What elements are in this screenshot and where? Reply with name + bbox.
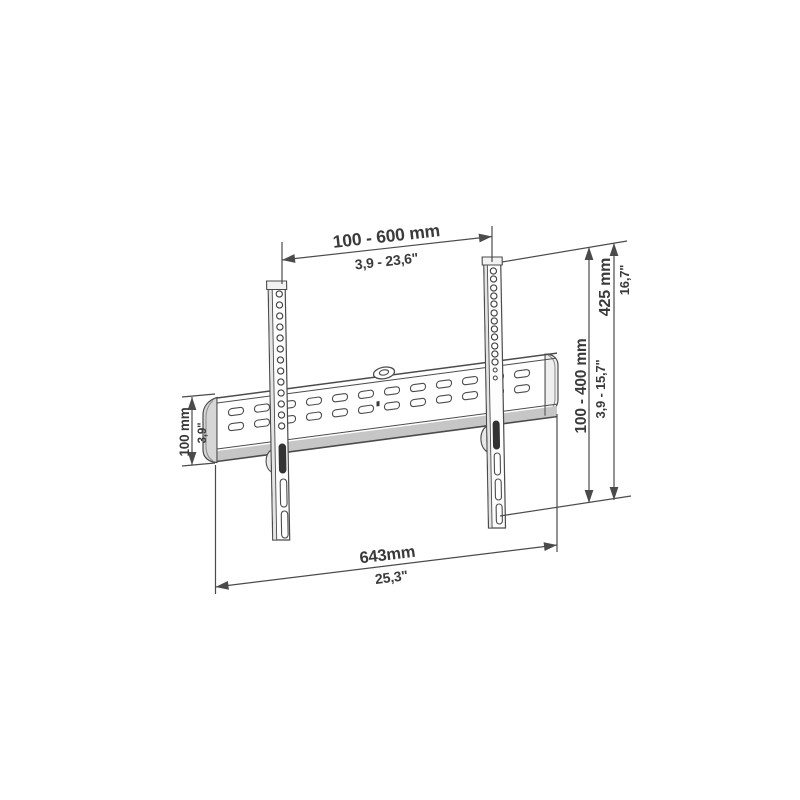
rail-hole <box>491 334 497 340</box>
dim-left-mm-label: 100 mm <box>177 407 192 456</box>
plate-slot <box>437 395 452 404</box>
right-rail-slot <box>496 504 502 524</box>
dim-right-inner-in-label: 3,9 - 15,7" <box>593 360 608 419</box>
rail-hole <box>490 276 496 282</box>
left-rail-slot-dark <box>279 444 286 473</box>
ext-line-right-bottom <box>500 496 631 516</box>
plate-slot <box>515 369 530 378</box>
plate-slot <box>333 408 348 417</box>
dimension-arrow-icon <box>585 490 594 503</box>
plate-slot <box>255 404 270 413</box>
left-rail-slot <box>280 479 287 507</box>
rail-hole <box>278 368 284 374</box>
plate-slot <box>463 376 478 385</box>
plate-slot <box>515 384 530 393</box>
rail-hole <box>276 291 282 297</box>
dim-top-mm-label: 100 - 600 mm <box>332 220 441 252</box>
rail-hole <box>492 359 498 365</box>
ext-line-left-bottom <box>182 463 215 466</box>
plate-slot <box>385 386 400 395</box>
dimension-arrow-icon <box>610 243 619 256</box>
product-dimension-image: 100 - 600 mm 3,9 - 23,6" 425 mm 16,7" 10… <box>0 0 800 800</box>
rail-hole <box>277 335 283 341</box>
plate-slot <box>437 380 452 389</box>
rail-hole <box>278 379 284 385</box>
rail-hole <box>492 343 498 349</box>
right-rail-slot <box>494 453 500 475</box>
plate-slot <box>333 393 348 402</box>
dim-right-inner-mm-label: 100 - 400 mm <box>573 339 590 434</box>
left-rail-top-cap <box>267 281 287 290</box>
plate-slot <box>385 401 400 410</box>
plate-slot <box>411 398 426 407</box>
rail-hole <box>491 326 497 332</box>
rail-hole <box>491 318 497 324</box>
plate-slot <box>463 391 478 400</box>
rail-hole <box>279 423 285 429</box>
plate-slot <box>255 419 270 428</box>
dim-right-outer-mm-label: 425 mm <box>597 258 614 316</box>
ext-line-left-top <box>182 394 215 397</box>
rail-hole <box>492 351 498 357</box>
rail-hole-small <box>493 376 497 380</box>
rail-hole <box>276 302 282 308</box>
rail-hole <box>277 324 283 330</box>
dimension-arrow-icon <box>585 247 594 260</box>
rail-hole <box>491 301 497 307</box>
dimension-arrow-icon <box>479 232 493 242</box>
rail-hole <box>277 313 283 319</box>
left-rail-slot <box>281 511 288 538</box>
plate-slot <box>359 390 374 399</box>
plate-slot <box>411 383 426 392</box>
plate-slot <box>307 397 322 406</box>
rail-hole <box>277 357 283 363</box>
rail-hole-small <box>493 368 497 372</box>
dim-bottom-in-label: 25,3" <box>374 567 409 587</box>
plate-slot <box>359 405 374 414</box>
dim-right-outer-in-label: 16,7" <box>617 265 632 296</box>
wall-plate <box>203 344 558 464</box>
rail-hole <box>490 268 496 274</box>
mount-diagram: 100 - 600 mm 3,9 - 23,6" 425 mm 16,7" 10… <box>0 0 800 800</box>
center-mark <box>377 401 380 406</box>
rail-hole <box>491 285 497 291</box>
rail-hole <box>278 401 284 407</box>
right-rail-slot-dark <box>493 421 500 449</box>
rail-hole <box>491 293 497 299</box>
rail-hole <box>278 412 284 418</box>
dimension-arrow-icon <box>282 254 296 264</box>
plate-slot <box>229 407 244 416</box>
plate-slot <box>307 412 322 421</box>
right-rail-slot <box>495 479 501 500</box>
plate-slot <box>229 422 244 431</box>
dim-left-in-label: 3,9" <box>197 423 209 444</box>
rail-hole <box>277 346 283 352</box>
rail-hole <box>491 310 497 316</box>
rail-hole <box>278 390 284 396</box>
dim-top-in-label: 3,9 - 23,6" <box>354 250 419 273</box>
